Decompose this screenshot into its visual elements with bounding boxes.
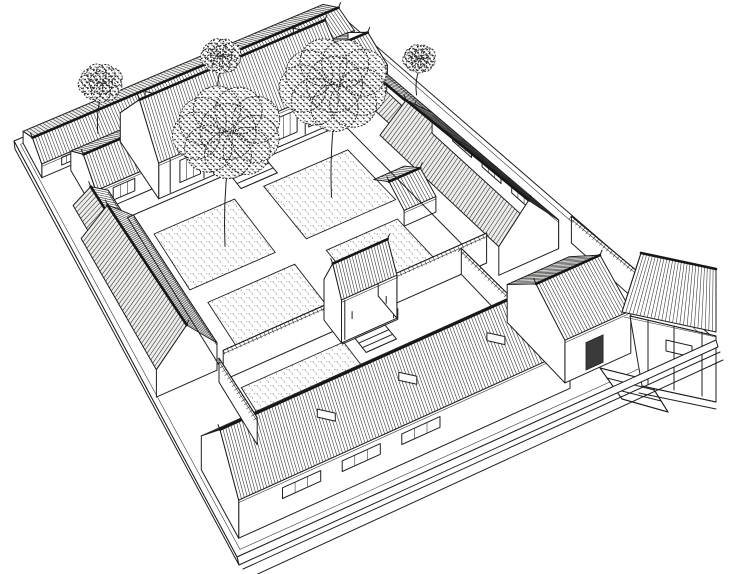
tree-canopy bbox=[307, 56, 363, 112]
tree-canopy bbox=[89, 71, 112, 94]
tree-canopy bbox=[211, 45, 232, 66]
tree-canopy bbox=[411, 50, 428, 67]
siheyuan-axonometric-illustration bbox=[0, 0, 731, 574]
tree-canopy bbox=[200, 104, 256, 160]
siheyuan-drawing-canvas bbox=[0, 0, 731, 574]
